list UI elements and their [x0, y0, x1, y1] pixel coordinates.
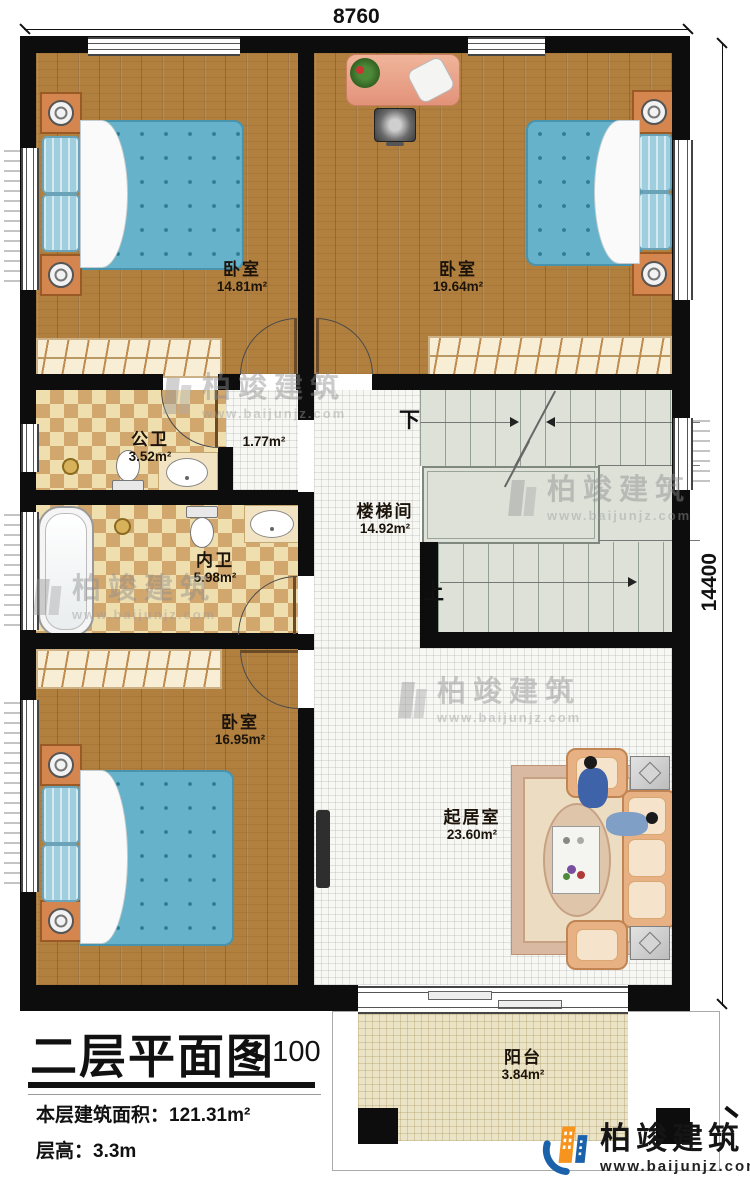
floor-plan-canvas: 下 上	[0, 0, 750, 1192]
balcony-sliding-door	[358, 986, 628, 1014]
brand-logo-icon	[542, 1122, 594, 1176]
room-label-bedroom-top-right: 卧室 19.64m²	[433, 260, 483, 294]
brand-accent-stroke	[724, 1106, 738, 1118]
pillow-symbol	[638, 134, 672, 192]
lamp-icon	[48, 100, 74, 126]
nightstand-symbol	[40, 900, 82, 942]
wall-stairs-bottom	[420, 632, 690, 648]
stairs-break-arrow-right	[510, 417, 519, 427]
pillow-symbol	[42, 844, 80, 902]
window-left-bedroom3	[21, 700, 39, 892]
lamp-icon	[641, 99, 667, 125]
lamp-icon	[48, 752, 74, 778]
pillow-symbol	[42, 786, 80, 844]
room-label-living-room: 起居室 23.60m²	[444, 808, 501, 842]
window-sill-left-2	[4, 514, 20, 628]
plant-icon	[350, 58, 380, 88]
stairs-down-label: 下	[399, 404, 420, 434]
wall-bedrooms-divider	[298, 36, 314, 374]
room-label-bedroom-top-left: 卧室 14.81m²	[217, 260, 267, 294]
title-rule-thin	[28, 1094, 321, 1095]
wall-bath-bottom	[20, 633, 298, 649]
wall-bottom-living-right	[628, 985, 690, 1011]
wardrobe-symbol	[36, 338, 222, 378]
tv-symbol	[316, 810, 330, 888]
window-sill-right	[692, 420, 710, 488]
window-right-bedroom2	[673, 140, 693, 300]
floor-drain-icon	[62, 458, 79, 475]
door-leaf-public-bath	[215, 390, 218, 447]
coffee-table-symbol	[552, 826, 600, 894]
stairs-upper-flight	[420, 390, 672, 466]
room-label-stairwell: 楼梯间 14.92m²	[357, 502, 414, 536]
stairs-down-guide-line	[420, 422, 510, 423]
window-sill-left-3	[4, 702, 20, 890]
person-figure	[606, 812, 648, 836]
sofa-symbol	[622, 790, 676, 928]
wall-mid-seg1	[20, 374, 163, 390]
sink-symbol	[166, 458, 208, 487]
pillow-symbol	[42, 136, 80, 194]
wardrobe-symbol	[428, 336, 672, 376]
lamp-icon	[48, 262, 74, 288]
window-top-left	[88, 37, 240, 56]
dimension-line-right	[722, 44, 723, 1006]
wall-corridor-seg-b	[298, 492, 314, 576]
plan-scale: 1:100	[248, 1036, 321, 1069]
toilet-symbol	[186, 506, 216, 548]
wall-corridor-seg-a	[298, 390, 314, 420]
dimension-line-top	[24, 29, 688, 30]
wall-mid-seg2	[218, 374, 240, 390]
person-figure	[646, 812, 658, 824]
door-leaf-ensuite	[293, 576, 296, 634]
wall-corridor-seg-d	[298, 708, 314, 1010]
sliding-panel-2	[498, 1000, 562, 1009]
stairs-up-arrow	[628, 577, 637, 587]
room-label-balcony: 阳台 3.84m²	[502, 1048, 545, 1082]
lamp-icon	[48, 908, 74, 934]
computer-monitor-symbol	[374, 108, 416, 142]
wardrobe-symbol	[36, 649, 222, 689]
pillow-symbol	[42, 194, 80, 252]
brand-website: www.baijunjz.com	[600, 1158, 750, 1175]
wall-bath-divider	[218, 447, 233, 490]
window-top-middle	[468, 37, 545, 56]
sink-symbol	[250, 510, 294, 538]
wall-bottom-living-left	[310, 985, 358, 1011]
side-table-symbol	[630, 756, 670, 790]
person-figure	[578, 768, 608, 808]
side-table-symbol	[630, 926, 670, 960]
room-label-bedroom-bottom-left: 卧室 16.95m²	[215, 713, 265, 747]
lamp-icon	[641, 261, 667, 287]
stairs-break-arrow-left	[546, 417, 555, 427]
door-leaf-bedroom1	[294, 318, 297, 374]
bathtub-symbol	[38, 506, 94, 637]
floor-height-line: 层高：3.3m	[36, 1136, 136, 1163]
wall-bottom-left	[20, 985, 310, 1011]
window-left-bedroom1	[21, 148, 39, 290]
pillow-symbol	[638, 192, 672, 250]
room-label-public-bathroom: 公卫 3.52m²	[129, 430, 172, 464]
balcony-pillar-bottom-left	[358, 1108, 398, 1144]
door-leaf-bedroom3	[240, 650, 298, 653]
armchair-symbol	[566, 920, 628, 970]
stairs-up-guide-line	[440, 582, 630, 583]
brand-logo: 柏竣建筑 www.baijunjz.com	[542, 1122, 750, 1176]
window-sill-left-1	[4, 150, 20, 288]
wall-corridor-seg-c	[298, 634, 314, 650]
window-left-ensuite	[21, 512, 39, 630]
nightstand-symbol	[40, 92, 82, 134]
dimension-width-label: 8760	[333, 5, 380, 29]
wall-bath-mid	[20, 490, 298, 505]
stairs-landing	[422, 466, 600, 544]
window-right-stairs	[673, 418, 693, 490]
monitor-stand	[386, 142, 404, 146]
stairs-side-area	[598, 466, 672, 542]
room-label-hallway: 1.77m²	[243, 434, 286, 449]
dimension-height-label: 14400	[698, 553, 722, 611]
title-rule	[28, 1082, 315, 1088]
floor-area-line: 本层建筑面积：121.31m²	[36, 1100, 250, 1127]
room-label-ensuite: 内卫 5.98m²	[194, 551, 237, 585]
door-leaf-bedroom2	[316, 318, 319, 374]
wall-mid-seg3	[296, 374, 316, 390]
sliding-panel-1	[428, 991, 492, 1000]
brand-name: 柏竣建筑	[600, 1122, 750, 1156]
stairs-lower-flight	[438, 542, 672, 632]
stairs-up-label: 上	[423, 576, 444, 606]
floor-drain-icon	[114, 518, 131, 535]
plan-title: 二层平面图	[30, 1018, 275, 1087]
bed-blanket-fold	[594, 120, 640, 264]
nightstand-symbol	[40, 744, 82, 786]
nightstand-symbol	[40, 254, 82, 296]
person-figure	[584, 756, 597, 769]
window-left-public-bath	[21, 424, 39, 472]
wall-mid-seg4	[372, 374, 690, 390]
